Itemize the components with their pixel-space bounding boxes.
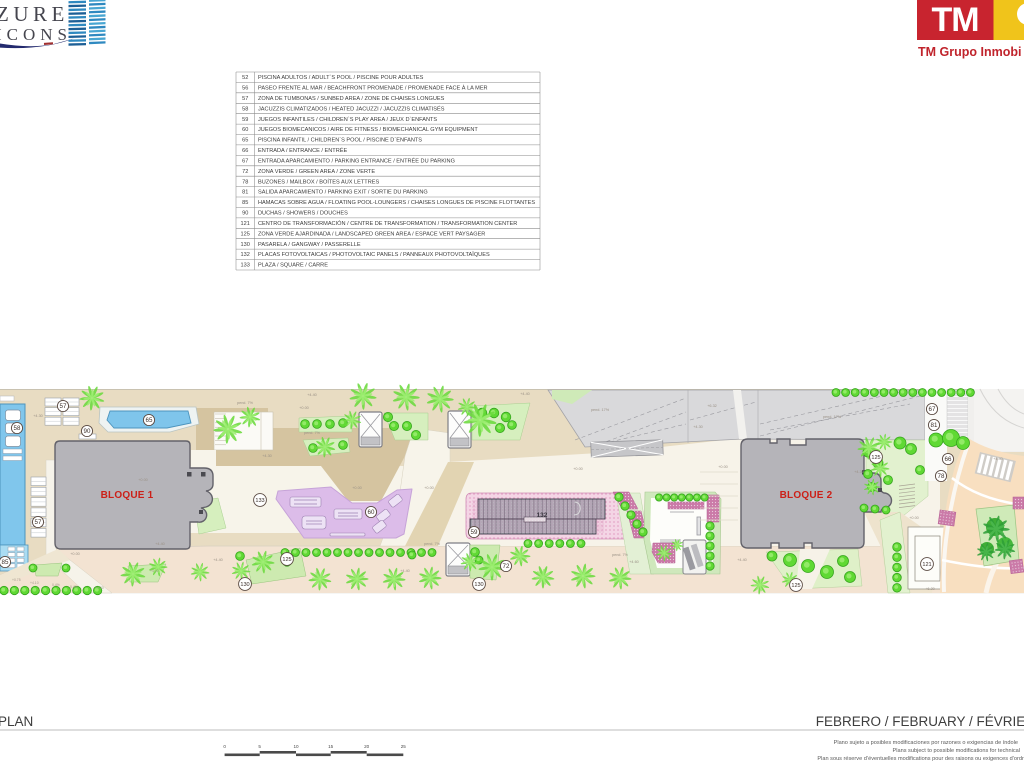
svg-text:125: 125 [871,455,880,461]
svg-text:+4.40: +4.40 [520,392,530,396]
svg-text:132: 132 [241,252,250,258]
svg-text:JUEGOS INFANTILES / CHILDREN`: JUEGOS INFANTILES / CHILDREN`S PLAY AREA… [258,117,437,123]
svg-text:58: 58 [14,425,21,432]
svg-text:pend. 17%: pend. 17% [591,408,610,412]
svg-text:66: 66 [945,456,952,463]
svg-text:57: 57 [60,403,67,410]
svg-text:+0.00: +0.00 [138,478,148,482]
svg-text:+0.00: +0.00 [424,486,434,490]
svg-text:81: 81 [931,422,938,429]
svg-text:+4.40: +4.40 [155,542,165,546]
svg-text:+0.75: +0.75 [12,578,21,582]
svg-text:ZONA VERDE / GREEN AREA / ZONE: ZONA VERDE / GREEN AREA / ZONE VERTE [258,169,375,175]
svg-text:121: 121 [922,562,931,568]
svg-text:ZONA DE TUMBONAS / SUNBED ARE: ZONA DE TUMBONAS / SUNBED AREA / ZONE DE… [258,96,445,102]
svg-text:PLACAS FOTOVOLTAICAS / PHOTOVO: PLACAS FOTOVOLTAICAS / PHOTOVOLTAIC PANE… [258,251,490,258]
svg-text:+4.40: +4.40 [737,558,747,562]
svg-text:PASEO FRENTE AL MAR / BEACHFRO: PASEO FRENTE AL MAR / BEACHFRONT PROMENA… [258,85,488,92]
svg-text:+6.20: +6.20 [925,587,935,591]
svg-text:BUZONES / MAILBOX / BOÍTES AU: BUZONES / MAILBOX / BOÍTES AUX LETTRES [258,178,379,185]
svg-text:67: 67 [242,158,248,164]
svg-text:56: 56 [242,86,248,92]
svg-text:0.4%: 0.4% [52,583,60,587]
svg-text:132: 132 [537,512,548,519]
svg-text:pend. 17%: pend. 17% [823,415,842,419]
svg-text:121: 121 [241,221,250,227]
svg-text:0.4%: 0.4% [70,585,78,589]
svg-text:5: 5 [258,744,261,749]
svg-text:TM Grupo Inmobi: TM Grupo Inmobi [918,45,1021,59]
svg-text:HAMACAS SOBRE AGUA / FLOATING: HAMACAS SOBRE AGUA / FLOATING POOL-LOUNG… [258,200,535,206]
svg-text:+4.30: +4.30 [33,414,43,418]
svg-text:65: 65 [242,138,248,144]
svg-text:+0.00: +0.00 [909,516,919,520]
svg-text:52: 52 [242,75,248,81]
svg-text:JUEGOS BIOMECANICOS / AIRE DE: JUEGOS BIOMECANICOS / AIRE DE FITNESS / … [258,127,478,133]
svg-text:+4.40: +4.40 [213,558,223,562]
svg-text:25: 25 [401,744,407,749]
svg-text:20: 20 [364,744,370,749]
svg-text:TM: TM [931,1,978,39]
svg-text:CENTRO DE TRANSFORMACIÓN / CEN: CENTRO DE TRANSFORMACIÓN / CENTRE DE TRA… [258,220,517,227]
svg-text:125: 125 [241,231,250,237]
svg-text:133: 133 [241,263,250,269]
svg-text:57: 57 [242,96,248,102]
svg-text:DUCHAS / SHOWERS / DOUCHES: DUCHAS / SHOWERS / DOUCHES [258,211,348,217]
svg-text:pend. 7%: pend. 7% [612,553,629,557]
svg-text:+4.30: +4.30 [262,454,272,458]
svg-text:Plans subject to possible modi: Plans subject to possible modifications … [893,748,1020,754]
svg-text:ICONS: ICONS [0,25,72,44]
svg-text:PLAN: PLAN [0,714,33,729]
svg-text:pend. 7%: pend. 7% [237,401,254,405]
svg-text:90: 90 [84,428,91,435]
svg-text:130: 130 [240,582,249,588]
svg-text:81: 81 [242,190,248,196]
svg-text:72: 72 [503,563,510,570]
svg-text:60: 60 [368,509,375,516]
svg-text:pend. 7%: pend. 7% [304,431,321,435]
svg-text:BLOQUE 1: BLOQUE 1 [101,490,154,501]
svg-text:PASARELA / GANGWAY / PASSERELL: PASARELA / GANGWAY / PASSERELLE [258,242,361,248]
svg-text:+4.40: +4.40 [400,569,410,573]
svg-text:10: 10 [293,744,299,749]
svg-text:+6.32: +6.32 [707,404,717,408]
svg-text:ENTRADA APARCAMIENTO / PARKING: ENTRADA APARCAMIENTO / PARKING ENTRANCE … [258,157,455,164]
svg-text:78: 78 [938,473,945,480]
svg-text:133: 133 [255,498,264,504]
svg-text:+0.00: +0.00 [352,486,362,490]
svg-text:59: 59 [242,117,248,123]
svg-text:15: 15 [328,744,334,749]
svg-text:66: 66 [242,148,248,154]
svg-text:+4.30: +4.30 [854,470,864,474]
svg-text:72: 72 [242,169,248,175]
svg-text:+0.00: +0.00 [718,465,728,469]
svg-text:PISCINA ADULTOS / ADULT`S POOL: PISCINA ADULTOS / ADULT`S POOL / PISCINE… [258,75,424,81]
svg-text:ZURE: ZURE [0,2,69,26]
svg-text:+4.40: +4.40 [150,569,159,573]
svg-text:0: 0 [223,744,226,749]
svg-text:FEBRERO / FEBRUARY / FÉVRIER: FEBRERO / FEBRUARY / FÉVRIER [816,714,1024,729]
svg-text:130: 130 [474,582,483,588]
svg-text:65: 65 [146,417,153,424]
svg-text:125: 125 [282,557,291,563]
svg-text:+0.00: +0.00 [573,467,583,471]
svg-text:125: 125 [791,583,800,589]
svg-text:60: 60 [242,127,248,133]
svg-text:+0.00: +0.00 [299,406,309,410]
svg-text:85: 85 [242,200,248,206]
svg-text:+4.60: +4.60 [629,560,639,564]
svg-text:90: 90 [242,211,248,217]
svg-text:57: 57 [35,519,42,526]
svg-text:59: 59 [471,529,478,536]
svg-text:ENTRADA / ENTRANCE / ENTRÉE: ENTRADA / ENTRANCE / ENTRÉE [258,147,347,154]
svg-text:78: 78 [242,179,248,185]
svg-text:+4.20: +4.20 [95,586,104,590]
svg-text:130: 130 [241,242,250,248]
svg-text:pend. 7%: pend. 7% [424,542,441,546]
svg-text:+0.00: +0.00 [70,552,80,556]
svg-text:+4.10: +4.10 [30,581,39,585]
svg-text:67: 67 [929,406,936,413]
svg-text:+4.40: +4.40 [307,393,317,397]
svg-text:58: 58 [242,106,248,112]
svg-text:PLAZA / SQUARE / CARRE: PLAZA / SQUARE / CARRE [258,263,328,269]
svg-text:Plano sujeto a posibles modifi: Plano sujeto a posibles modificaciones p… [834,740,1018,746]
svg-text:JACUZZIS CLIMATIZADOS / HEATE: JACUZZIS CLIMATIZADOS / HEATED JACUZZI /… [258,105,445,112]
svg-text:BLOQUE 2: BLOQUE 2 [780,490,833,501]
svg-text:85: 85 [2,559,9,566]
svg-text:+4.40: +4.40 [993,457,1003,461]
svg-text:ZONA VERDE AJARDINADA / LANDSC: ZONA VERDE AJARDINADA / LANDSCAPED GREEN… [258,231,485,237]
svg-text:+4.30: +4.30 [693,425,703,429]
svg-text:SALIDA APARCAMIENTO / PARKING: SALIDA APARCAMIENTO / PARKING EXIT / SOR… [258,190,428,196]
svg-text:Plan sous réserve d’éventuelle: Plan sous réserve d’éventuelles modifica… [817,756,1024,762]
svg-text:PISCINA INFANTIL / CHILDREN`S: PISCINA INFANTIL / CHILDREN`S POOL / PIS… [258,138,422,144]
